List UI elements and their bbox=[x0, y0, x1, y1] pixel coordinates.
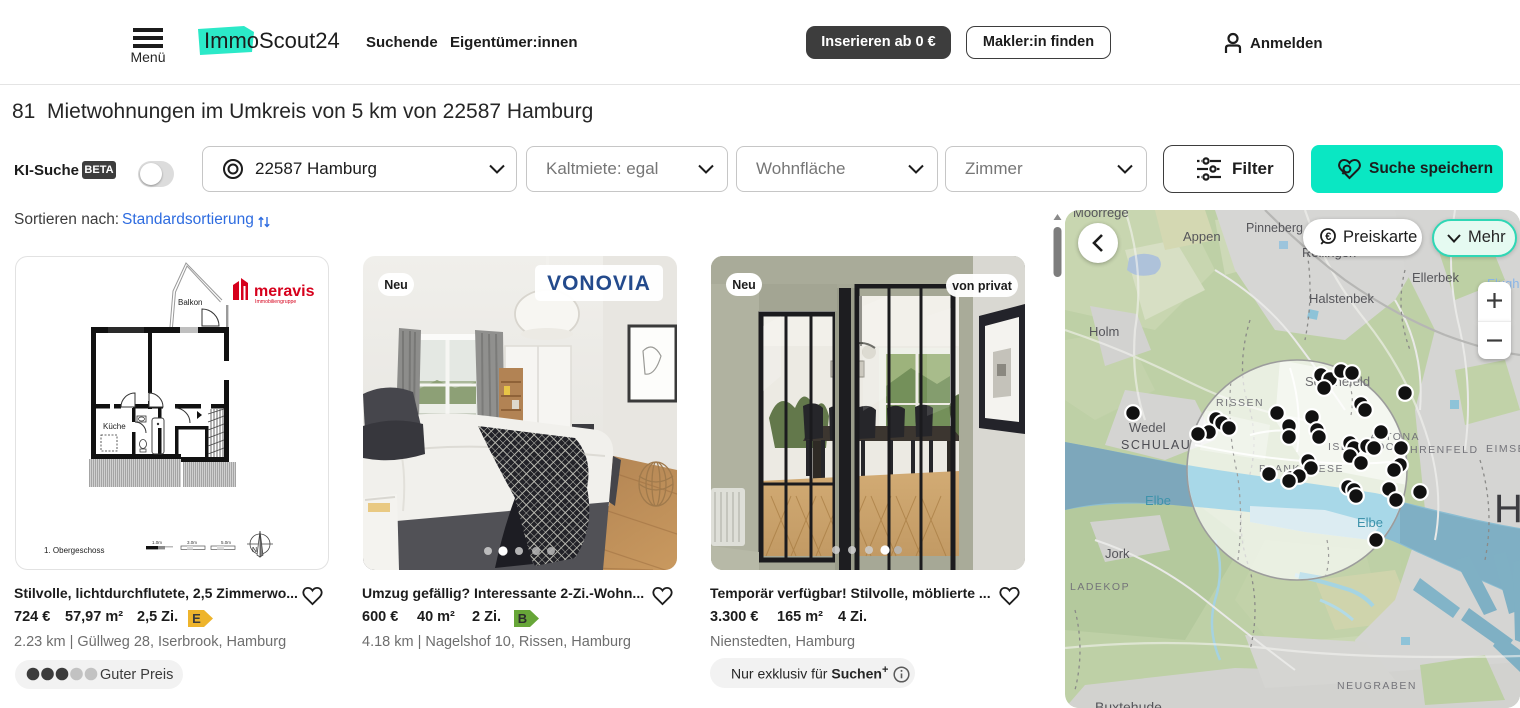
svg-text:NEUGRABEN: NEUGRABEN bbox=[1337, 680, 1417, 692]
svg-text:Pinneberg: Pinneberg bbox=[1246, 221, 1303, 235]
svg-text:Holm: Holm bbox=[1089, 324, 1119, 339]
svg-text:Balkon: Balkon bbox=[178, 298, 202, 307]
svg-text:Ellerbek: Ellerbek bbox=[1412, 270, 1459, 285]
svg-text:Wedel: Wedel bbox=[1129, 420, 1166, 435]
svg-text:€: € bbox=[1325, 231, 1331, 243]
svg-text:RISSEN: RISSEN bbox=[1216, 397, 1264, 409]
svg-text:Immobiliengruppe: Immobiliengruppe bbox=[255, 299, 296, 305]
svg-text:LADEKOP: LADEKOP bbox=[1070, 581, 1130, 593]
svg-text:Halstenbek: Halstenbek bbox=[1309, 291, 1375, 306]
svg-text:3.0m: 3.0m bbox=[187, 540, 197, 545]
svg-text:B: B bbox=[518, 611, 527, 626]
svg-text:H: H bbox=[1494, 487, 1520, 531]
svg-text:Neu: Neu bbox=[384, 278, 408, 292]
svg-text:N: N bbox=[252, 547, 257, 554]
svg-text:E: E bbox=[192, 611, 201, 626]
svg-text:Jork: Jork bbox=[1105, 546, 1130, 561]
svg-text:Elbe: Elbe bbox=[1145, 493, 1171, 508]
svg-text:Buxtehude: Buxtehude bbox=[1095, 699, 1162, 708]
svg-text:von privat: von privat bbox=[952, 279, 1013, 293]
svg-text:VONOVIA: VONOVIA bbox=[547, 272, 651, 295]
svg-text:Appen: Appen bbox=[1183, 229, 1221, 244]
svg-text:Neu: Neu bbox=[732, 278, 756, 292]
svg-text:Elbe: Elbe bbox=[1357, 515, 1383, 530]
svg-text:EIMSBÜ: EIMSBÜ bbox=[1486, 443, 1520, 455]
svg-text:SCHULAU: SCHULAU bbox=[1121, 438, 1191, 452]
svg-text:Moorrege: Moorrege bbox=[1073, 210, 1129, 220]
svg-text:meravis: meravis bbox=[254, 283, 315, 300]
svg-text:5.0m: 5.0m bbox=[221, 540, 231, 545]
svg-text:1. Obergeschoss: 1. Obergeschoss bbox=[44, 546, 104, 555]
svg-text:Küche: Küche bbox=[103, 422, 126, 431]
svg-text:1.0m: 1.0m bbox=[152, 540, 162, 545]
